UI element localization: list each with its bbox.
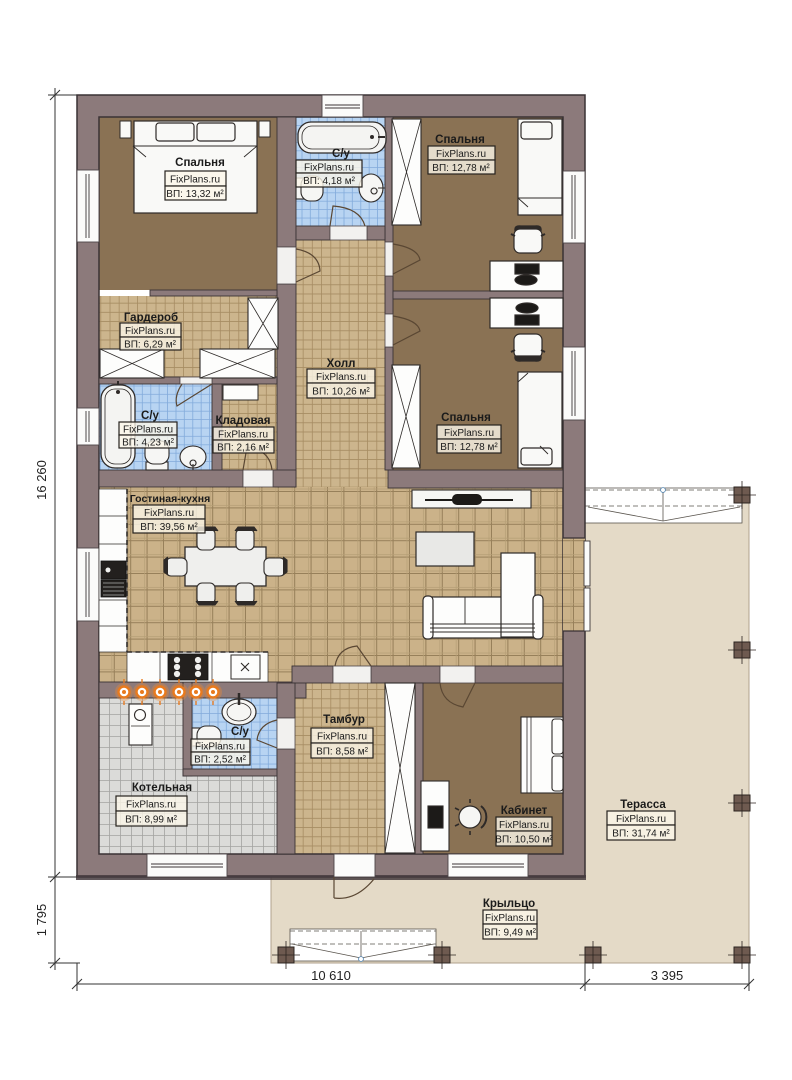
svg-text:FixPlans.ru: FixPlans.ru [123,425,173,436]
svg-text:Холл: Холл [327,358,356,370]
svg-text:FixPlans.ru: FixPlans.ru [485,913,535,924]
svg-text:Кладовая: Кладовая [215,415,270,427]
svg-text:16 260: 16 260 [34,460,49,500]
svg-text:ВП: 12,78 м²: ВП: 12,78 м² [432,163,490,174]
svg-text:FixPlans.ru: FixPlans.ru [195,742,245,753]
svg-text:Гардероб: Гардероб [124,312,178,324]
svg-text:С/у: С/у [332,148,351,160]
svg-text:ВП: 12,78 м²: ВП: 12,78 м² [440,442,498,453]
svg-text:Тамбур: Тамбур [323,714,365,726]
svg-text:FixPlans.ru: FixPlans.ru [126,800,176,811]
svg-text:10 610: 10 610 [311,968,351,983]
svg-text:ВП: 9,49 м²: ВП: 9,49 м² [484,928,537,939]
svg-text:FixPlans.ru: FixPlans.ru [317,732,367,743]
svg-text:FixPlans.ru: FixPlans.ru [170,175,220,186]
svg-text:ВП: 39,56 м²: ВП: 39,56 м² [140,522,198,533]
svg-text:ВП: 31,74 м²: ВП: 31,74 м² [612,829,670,840]
svg-text:ВП: 10,50 м²: ВП: 10,50 м² [495,835,553,846]
svg-text:Гостиная-кухня: Гостиная-кухня [130,493,210,505]
svg-text:Спальня: Спальня [441,412,491,424]
svg-text:ВП: 2,52 м²: ВП: 2,52 м² [194,755,247,766]
svg-text:FixPlans.ru: FixPlans.ru [616,814,666,825]
svg-text:Крыльцо: Крыльцо [483,898,535,910]
svg-text:ВП: 6,29 м²: ВП: 6,29 м² [124,340,177,351]
svg-text:FixPlans.ru: FixPlans.ru [444,428,494,439]
svg-text:ВП: 8,99 м²: ВП: 8,99 м² [125,815,178,826]
svg-text:ВП: 10,26 м²: ВП: 10,26 м² [312,387,370,398]
svg-text:FixPlans.ru: FixPlans.ru [499,820,549,831]
svg-text:Спальня: Спальня [175,157,225,169]
svg-text:ВП: 8,58 м²: ВП: 8,58 м² [316,747,369,758]
svg-text:ВП: 13,32 м²: ВП: 13,32 м² [166,189,224,200]
svg-text:Спальня: Спальня [435,134,485,146]
svg-text:ВП: 2,16 м²: ВП: 2,16 м² [217,443,270,454]
svg-text:FixPlans.ru: FixPlans.ru [125,326,175,337]
svg-text:С/у: С/у [141,410,160,422]
svg-text:1 795: 1 795 [34,904,49,937]
svg-text:FixPlans.ru: FixPlans.ru [316,372,366,383]
svg-text:Кабинет: Кабинет [501,805,548,817]
svg-text:FixPlans.ru: FixPlans.ru [436,149,486,160]
svg-text:FixPlans.ru: FixPlans.ru [304,163,354,174]
svg-text:ВП: 4,18 м²: ВП: 4,18 м² [303,176,356,187]
svg-text:Терасса: Терасса [620,799,666,811]
svg-text:3 395: 3 395 [651,968,684,983]
svg-text:ВП: 4,23 м²: ВП: 4,23 м² [122,438,175,449]
svg-text:С/у: С/у [231,726,250,738]
svg-text:Котельная: Котельная [132,782,192,794]
svg-text:FixPlans.ru: FixPlans.ru [144,508,194,519]
svg-text:FixPlans.ru: FixPlans.ru [218,430,268,441]
